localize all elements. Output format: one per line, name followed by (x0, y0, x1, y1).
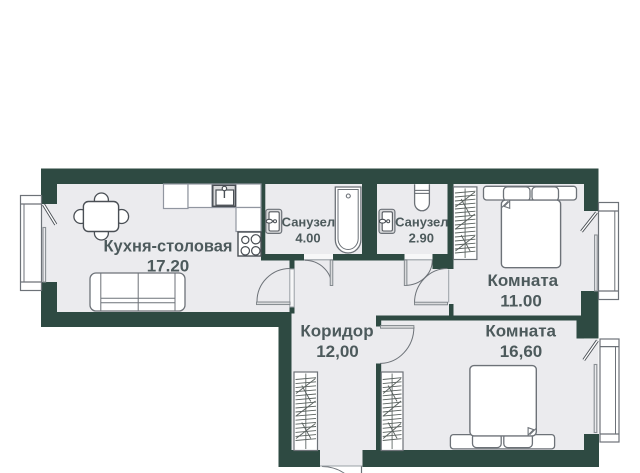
svg-text:12,00: 12,00 (316, 342, 359, 361)
svg-text:17.20: 17.20 (147, 257, 190, 276)
svg-text:Коридор: Коридор (300, 321, 373, 340)
svg-text:Комната: Комната (487, 271, 558, 290)
svg-text:Санузел: Санузел (282, 214, 335, 229)
svg-text:4.00: 4.00 (295, 230, 320, 245)
svg-text:Комната: Комната (485, 322, 556, 341)
svg-text:16,60: 16,60 (500, 342, 543, 361)
svg-text:Санузел: Санузел (395, 214, 448, 229)
svg-text:Кухня-столовая: Кухня-столовая (104, 236, 233, 255)
svg-text:2.90: 2.90 (409, 230, 434, 245)
svg-text:11.00: 11.00 (500, 291, 542, 310)
